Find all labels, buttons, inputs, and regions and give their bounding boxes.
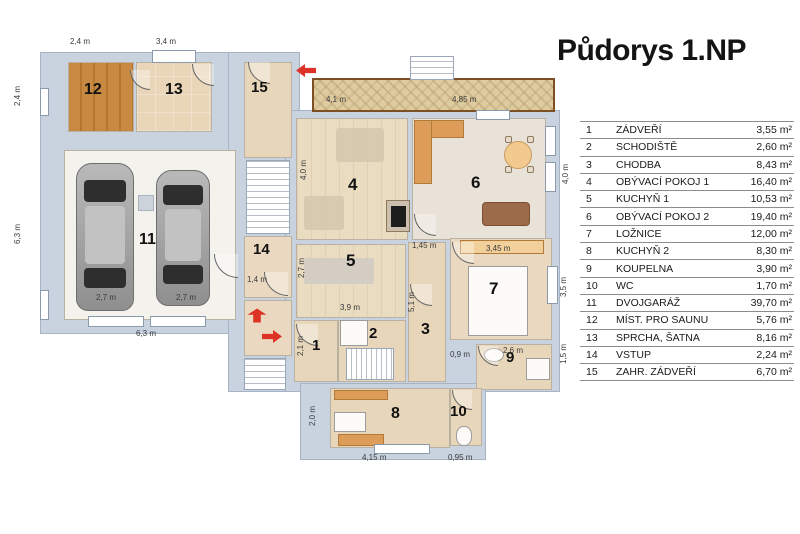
legend-room-area: 3,55 m² [734,124,794,136]
dimension-label: 2,0 m [309,406,317,426]
terrace-stairs [410,56,454,80]
legend-row: 7LOŽNICE12,00 m² [580,226,794,243]
legend-room-number: 11 [580,297,616,309]
legend-room-name: SCHODIŠTĚ [616,141,734,153]
legend-room-number: 7 [580,228,616,240]
room-number-label: 15 [251,80,268,95]
dimension-label: 3,45 m [486,245,510,253]
legend-room-area: 6,70 m² [734,366,794,378]
dimension-label: 4,1 m [326,96,346,104]
legend-room-area: 8,43 m² [734,159,794,171]
legend-room-name: MÍST. PRO SAUNU [616,314,734,326]
room-number-label: 3 [421,322,430,338]
chair-icon [527,166,534,173]
legend-room-name: KUCHYŇ 1 [616,193,734,205]
room-number-label: 10 [450,404,467,419]
dimension-label: 3,5 m [560,277,568,297]
room-number-label: 12 [84,82,102,98]
dimension-label: 6,3 m [136,330,156,338]
chair-icon [527,136,534,143]
legend-room-name: CHODBA [616,159,734,171]
garage-pillar [138,195,154,211]
dining-table-icon [504,141,532,169]
legend-row: 10WC1,70 m² [580,278,794,295]
dimension-label: 2,4 m [70,38,90,46]
legend-room-area: 3,90 m² [734,263,794,275]
window [40,88,49,116]
rug [304,258,374,284]
window [545,126,556,156]
kitchen-counter [334,390,388,400]
room-number-label: 11 [139,232,156,248]
legend-room-area: 10,53 m² [734,193,794,205]
legend-room-area: 19,40 m² [734,211,794,223]
toilet-icon [456,426,472,446]
room-3-floor-hall [408,242,446,382]
legend-row: 13SPRCHA, ŠATNA8,16 m² [580,330,794,347]
room-number-label: 14 [253,242,270,257]
dimension-label: 5,1 m [408,292,416,312]
legend-row: 5KUCHYŇ 110,53 m² [580,191,794,208]
legend-room-name: OBÝVACÍ POKOJ 1 [616,176,734,188]
sofa-icon [482,202,530,226]
legend-room-name: LOŽNICE [616,228,734,240]
page-title: Půdorys 1.NP [557,34,746,68]
room-legend-table: 1ZÁDVEŘÍ3,55 m²2SCHODIŠTĚ2,60 m²3CHODBA8… [580,121,794,381]
dimension-label: 0,9 m [450,351,470,359]
rug [336,128,384,162]
dimension-label: 2,4 m [14,86,22,106]
dimension-label: 3,9 m [340,304,360,312]
legend-room-number: 15 [580,366,616,378]
dimension-label: 4,15 m [362,454,386,462]
legend-room-name: ZÁDVEŘÍ [616,124,734,136]
room-number-label: 2 [369,326,377,341]
fireplace-icon [386,200,410,232]
legend-row: 11DVOJGARÁŽ39,70 m² [580,295,794,312]
dimension-label: 4,85 m [452,96,476,104]
window [547,266,558,304]
kitchen-counter [414,120,432,184]
legend-room-name: VSTUP [616,349,734,361]
room-number-label: 7 [489,280,498,297]
dimension-label: 1,45 m [412,242,436,250]
legend-room-name: ZAHR. ZÁDVEŘÍ [616,366,734,378]
room-number-label: 1 [312,338,320,353]
legend-room-number: 6 [580,211,616,223]
rug [304,196,344,230]
dimension-label: 3,4 m [156,38,176,46]
legend-row: 6OBÝVACÍ POKOJ 219,40 m² [580,208,794,225]
dimension-label: 2,1 m [297,336,305,356]
legend-row: 15ZAHR. ZÁDVEŘÍ6,70 m² [580,364,794,381]
legend-room-number: 5 [580,193,616,205]
window [545,162,556,192]
window [40,290,49,320]
window [476,110,510,120]
entry-porch-floor [244,300,292,356]
legend-row: 1ZÁDVEŘÍ3,55 m² [580,122,794,139]
garage-door [88,316,144,327]
bed-icon [468,266,528,336]
room-number-label: 13 [165,82,183,98]
legend-room-number: 9 [580,263,616,275]
stair-landing [340,320,368,346]
legend-room-area: 1,70 m² [734,280,794,292]
legend-room-area: 39,70 m² [734,297,794,309]
legend-room-name: KOUPELNA [616,263,734,275]
legend-room-name: WC [616,280,734,292]
legend-room-number: 13 [580,332,616,344]
dimension-label: 1,4 m [247,276,267,284]
dimension-label: 2,7 m [96,294,116,302]
room-number-label: 5 [346,252,355,269]
dimension-label: 1,5 m [560,344,568,364]
legend-room-number: 1 [580,124,616,136]
legend-room-number: 14 [580,349,616,361]
legend-room-name: OBÝVACÍ POKOJ 2 [616,211,734,223]
dimension-label: 4,0 m [562,164,570,184]
dimension-label: 6,3 m [14,224,22,244]
legend-room-area: 12,00 m² [734,228,794,240]
legend-row: 4OBÝVACÍ POKOJ 116,40 m² [580,174,794,191]
dimension-label: 2,7 m [176,294,196,302]
dimension-label: 2,6 m [503,347,523,355]
legend-room-number: 12 [580,314,616,326]
legend-room-area: 8,30 m² [734,245,794,257]
legend-room-name: SPRCHA, ŠATNA [616,332,734,344]
legend-row: 8KUCHYŇ 28,30 m² [580,243,794,260]
room-number-label: 8 [391,406,400,422]
legend-row: 3CHODBA8,43 m² [580,157,794,174]
legend-room-number: 10 [580,280,616,292]
room-number-label: 4 [348,176,357,193]
entry-stairs [244,358,286,390]
staircase-room-2 [346,348,394,380]
legend-room-number: 8 [580,245,616,257]
legend-room-area: 2,24 m² [734,349,794,361]
terrace [312,78,555,112]
legend-room-number: 3 [580,159,616,171]
legend-room-name: DVOJGARÁŽ [616,297,734,309]
legend-row: 2SCHODIŠTĚ2,60 m² [580,139,794,156]
floorplan-page: 123456789101112131415 2,4 m3,4 m4,1 m4,8… [0,0,800,534]
staircase-15-14 [246,160,290,234]
bathtub-icon [526,358,550,380]
legend-row: 12MÍST. PRO SAUNU5,76 m² [580,312,794,329]
kitchen-table [334,412,366,432]
window [152,50,196,63]
legend-room-name: KUCHYŇ 2 [616,245,734,257]
legend-room-area: 5,76 m² [734,314,794,326]
garage-door [150,316,206,327]
legend-room-area: 16,40 m² [734,176,794,188]
legend-room-number: 4 [580,176,616,188]
car-icon [156,170,210,306]
room-number-label: 6 [471,174,480,191]
dimension-label: 4,0 m [300,160,308,180]
car-icon [76,163,134,311]
dimension-label: 2,7 m [298,258,306,278]
dimension-label: 0,95 m [448,454,472,462]
legend-room-number: 2 [580,141,616,153]
legend-room-area: 8,16 m² [734,332,794,344]
legend-row: 9KOUPELNA3,90 m² [580,260,794,277]
legend-row: 14VSTUP2,24 m² [580,347,794,364]
legend-room-area: 2,60 m² [734,141,794,153]
